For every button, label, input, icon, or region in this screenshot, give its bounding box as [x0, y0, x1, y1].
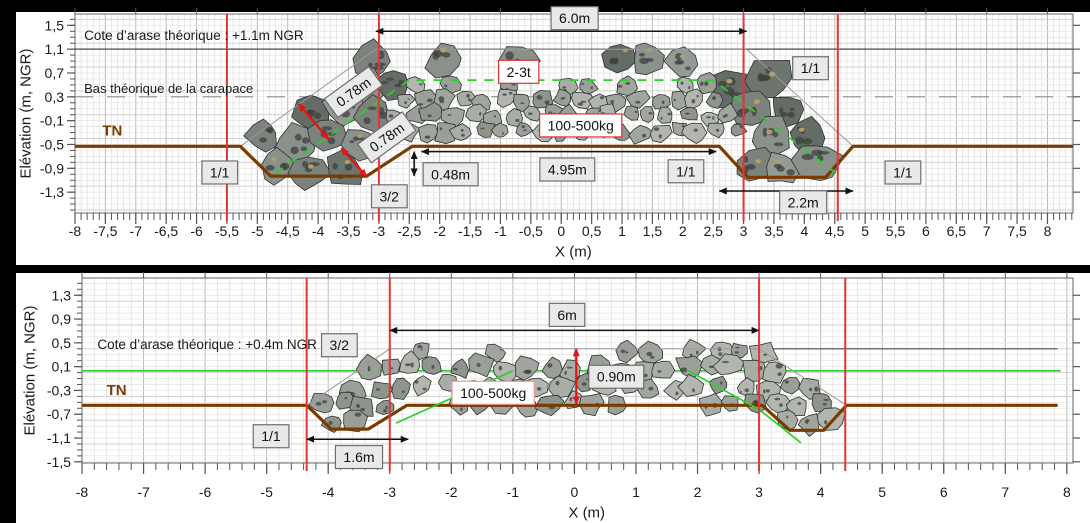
x-tick-label: 3 [755, 484, 763, 500]
rock-speckle [367, 107, 377, 110]
x-tick-label: 6,5 [947, 223, 967, 239]
rock-speckle [609, 58, 618, 65]
rock-speckle [763, 389, 765, 393]
rock-speckle [809, 388, 812, 392]
rock-speckle [635, 101, 640, 104]
rock-speckle [802, 138, 812, 144]
x-tick-label: 7,5 [1007, 223, 1027, 239]
rock-speckle [746, 164, 756, 170]
rock-speckle [776, 363, 783, 368]
rock-speckle [353, 137, 358, 141]
rock-speckle [525, 370, 532, 374]
rock-speckle [479, 112, 481, 116]
x-tick-label: -6 [190, 223, 203, 239]
rock-speckle [722, 361, 729, 363]
x-tick-label: -7 [130, 223, 143, 239]
rock-highlight [754, 99, 760, 104]
rock-speckle [360, 408, 365, 412]
rock-speckle [477, 363, 481, 367]
rock-speckle [432, 52, 439, 60]
rock-speckle [537, 95, 543, 100]
x-tick-label: -4 [322, 484, 335, 500]
x-tick-label: -8 [69, 223, 82, 239]
x-tick-label: 6 [922, 223, 930, 239]
rock-speckle [410, 362, 413, 367]
rock-highlight [647, 48, 652, 52]
y-axis-title: Elévation (m, NGR) [18, 48, 35, 178]
rock-speckle [774, 398, 780, 401]
rock-speckle [564, 371, 566, 375]
x-tick-label: 1,5 [643, 223, 663, 239]
y-tick-label: -0,7 [47, 406, 71, 422]
rock-speckle [704, 81, 708, 86]
rock-speckle [356, 404, 360, 408]
rock-speckle [265, 126, 273, 132]
y-tick-label: 0,5 [52, 335, 72, 351]
rock [652, 362, 675, 379]
rock-speckle [734, 351, 739, 353]
rock-speckle [667, 113, 671, 116]
x-tick-label: 0,5 [582, 223, 602, 239]
rock-speckle [418, 345, 422, 349]
x-tick-label: -3 [373, 223, 386, 239]
x-tick-label: 8 [1044, 223, 1052, 239]
rock-speckle [355, 413, 362, 417]
x-tick-label: -2 [433, 223, 446, 239]
rock-speckle [802, 154, 814, 160]
x-tick-label: 7 [983, 223, 991, 239]
rock-speckle [790, 108, 795, 111]
label-box: 1/1 [793, 57, 829, 80]
rock-speckle [785, 380, 789, 383]
rock-speckle [824, 420, 827, 424]
rock-speckle [662, 101, 665, 105]
label-box: 0.48m [423, 163, 478, 186]
rock-speckle [740, 391, 742, 393]
rock-highlight [272, 157, 277, 161]
rock-speckle [680, 367, 687, 372]
x-tick-label: 3,5 [764, 223, 784, 239]
rock-speckle [649, 112, 653, 115]
rock-speckle [805, 419, 808, 424]
label-box: 1/1 [253, 425, 289, 448]
rock-speckle [681, 82, 684, 85]
x-tick-label: -5,5 [215, 223, 239, 239]
rock-speckle [419, 83, 423, 85]
y-tick-label: -0,9 [40, 160, 64, 176]
x-tick-label: -2,5 [397, 223, 421, 239]
rock-speckle [625, 351, 628, 353]
rock-speckle [494, 115, 496, 117]
rock-speckle [302, 137, 310, 143]
rock-speckle [386, 78, 394, 81]
label-box: 100-500kg [540, 114, 622, 137]
rock-speckle [696, 351, 699, 355]
x-tick-label: 4,5 [825, 223, 845, 239]
label-box-text: 3/2 [330, 337, 350, 353]
rock-speckle [515, 119, 519, 122]
label-box: 1/1 [668, 160, 704, 183]
rock-speckle [499, 366, 503, 371]
rock-speckle [266, 165, 275, 171]
y-tick-label: -1,5 [47, 454, 71, 470]
x-tick-label: -0,5 [519, 223, 543, 239]
x-tick-label: -5 [260, 484, 273, 500]
x-tick-label: 4 [800, 223, 808, 239]
label-box-text: 2.2m [788, 194, 819, 210]
rock-speckle [621, 350, 626, 354]
rock-speckle [322, 400, 327, 403]
rock-speckle [505, 52, 513, 61]
label-box: 1.6m [335, 446, 382, 469]
x-tick-label: 7 [1001, 484, 1009, 500]
x-tick-label: -1,5 [458, 223, 482, 239]
rock-speckle [404, 101, 407, 104]
label-box-text: 1/1 [893, 164, 913, 180]
rock-speckle [423, 388, 427, 391]
rock-speckle [674, 99, 676, 101]
rock-speckle [537, 387, 542, 391]
rock-speckle [440, 127, 443, 130]
rock-speckle [600, 96, 604, 99]
label-box: 2.2m [780, 191, 827, 214]
x-tick-label: -2 [445, 484, 458, 500]
rock-speckle [447, 114, 451, 116]
rock-speckle [777, 166, 785, 172]
rock-speckle [376, 388, 380, 390]
rock-speckle [509, 92, 513, 95]
rock-speckle [427, 99, 433, 103]
rock-speckle [460, 407, 463, 411]
label-box: 2-3t [499, 60, 539, 83]
rock-highlight [775, 160, 780, 164]
label-box-text: 2-3t [507, 64, 531, 80]
rock-speckle [383, 409, 387, 412]
rock-highlight [727, 79, 733, 84]
rock-speckle [302, 161, 308, 168]
rock-speckle [617, 85, 622, 88]
rock-speckle [560, 98, 564, 100]
rock-speckle [723, 115, 726, 118]
rock-speckle [740, 126, 743, 129]
y-tick-label: -1,3 [40, 184, 64, 200]
rock-speckle [692, 388, 695, 392]
rock-speckle [700, 82, 704, 86]
annotation-text: Cote d’arase théorique : +0.4m NGR [97, 337, 317, 352]
y-tick-label: -1,1 [47, 430, 71, 446]
label-box: 100-500kg [452, 381, 534, 404]
rock-highlight [358, 134, 363, 138]
rock-speckle [648, 387, 653, 391]
rock-speckle [659, 134, 662, 138]
y-tick-label: 0,3 [45, 89, 65, 105]
label-box-text: 100-500kg [548, 117, 614, 133]
rock-highlight [680, 55, 684, 59]
y-tick-label: 1,3 [52, 287, 72, 303]
x-tick-label: -1 [507, 484, 520, 500]
rock-speckle [642, 134, 646, 138]
rock-speckle [823, 399, 829, 401]
rock-speckle [556, 381, 560, 386]
rock [640, 107, 654, 123]
rock-speckle [787, 112, 795, 118]
label-box-text: 0.90m [597, 369, 636, 385]
rock-speckle [442, 52, 451, 57]
x-axis-title: X (m) [555, 244, 592, 261]
y-tick-label: 0,7 [45, 65, 65, 81]
rock-speckle [570, 397, 574, 399]
label-box-text: 1.6m [343, 449, 374, 465]
x-tick-label: 5,5 [886, 223, 906, 239]
rock-speckle [405, 363, 411, 366]
rock-speckle [677, 60, 685, 65]
label-box-text: 0.48m [431, 166, 470, 182]
rock-speckle [718, 352, 722, 356]
rock-speckle [685, 67, 691, 71]
rock-speckle [779, 403, 783, 407]
label-box-text: 1/1 [801, 60, 821, 76]
x-tick-label: 6 [940, 484, 948, 500]
label-box: 0.90m [589, 365, 644, 388]
rock-speckle [774, 143, 784, 147]
annotation-text: TN [107, 382, 127, 399]
rock-speckle [745, 388, 750, 392]
x-axis-title: X (m) [568, 505, 605, 522]
rock-speckle [528, 113, 533, 115]
rock-speckle [581, 101, 586, 103]
rock-speckle [259, 137, 267, 142]
x-tick-label: 0 [571, 484, 579, 500]
breakwater-cross-sections-figure: -8-7,5-7-6,5-6-5,5-5-4,5-4-3,5-3-2,5-2-1… [0, 0, 1090, 523]
rock-speckle [688, 86, 690, 89]
x-tick-label: 5 [861, 223, 869, 239]
label-box-text: 4.95m [548, 162, 587, 178]
rock-speckle [562, 86, 566, 89]
rock-speckle [502, 93, 507, 96]
rock-speckle [591, 86, 593, 89]
x-tick-label: 2 [679, 223, 687, 239]
rock-speckle [368, 366, 371, 372]
rock-speckle [712, 98, 716, 100]
rock-highlight [345, 160, 350, 164]
rock-highlight [755, 159, 760, 163]
y-axis-title: Elévation (m, NGR) [22, 305, 39, 435]
rock-speckle [349, 140, 354, 143]
rock-speckle [547, 363, 552, 367]
rock-speckle [650, 356, 654, 359]
label-box: 3/2 [322, 334, 358, 357]
annotation-text: TN [102, 122, 122, 139]
rock-speckle [817, 151, 829, 155]
x-tick-label: -4,5 [276, 223, 300, 239]
rock-speckle [777, 372, 782, 376]
rock-speckle [364, 117, 371, 124]
black-bar [0, 265, 1090, 273]
rock-speckle [823, 403, 827, 405]
rock-speckle [654, 127, 659, 131]
label-box-text: 3/2 [379, 188, 399, 204]
y-tick-label: 0,1 [52, 359, 72, 375]
x-tick-label: 2 [694, 484, 702, 500]
label-box-text: 1/1 [261, 428, 281, 444]
rock-speckle [786, 416, 788, 419]
x-tick-label: 1 [632, 484, 640, 500]
rock-speckle [523, 129, 527, 131]
black-bar [0, 0, 16, 523]
rock-speckle [787, 169, 795, 175]
rock-speckle [385, 406, 387, 410]
annotation-text: Bas théorique de la carapace [84, 81, 253, 96]
rock-speckle [773, 132, 779, 137]
x-tick-label: 8 [1063, 484, 1071, 500]
rock-speckle [414, 380, 419, 384]
label-box-text: 6m [557, 307, 576, 323]
x-tick-label: 1 [618, 223, 626, 239]
rock-speckle [402, 390, 405, 393]
x-tick-label: -6 [199, 484, 212, 500]
annotation-text: Cote d’arase théorique : +1.1m NGR [84, 28, 304, 43]
rock-speckle [582, 382, 587, 386]
x-tick-label: 2,5 [703, 223, 723, 239]
rock-speckle [706, 116, 711, 118]
breakwater-sections-svg: -8-7,5-7-6,5-6-5,5-5-4,5-4-3,5-3-2,5-2-1… [0, 0, 1090, 523]
y-tick-label: 0,9 [52, 311, 72, 327]
x-tick-label: -3,5 [336, 223, 360, 239]
x-tick-label: 5 [878, 484, 886, 500]
rock-speckle [696, 95, 698, 98]
rock-highlight [799, 128, 804, 132]
rock-speckle [344, 397, 347, 399]
x-tick-label: -1 [494, 223, 507, 239]
y-tick-label: 1,1 [45, 41, 65, 57]
rock-speckle [332, 163, 337, 170]
rock-speckle [444, 85, 447, 88]
rock-speckle [468, 98, 471, 101]
label-box-text: 100-500kg [460, 385, 526, 401]
rock-speckle [389, 114, 394, 117]
y-tick-label: 1,5 [45, 17, 65, 33]
black-bar [0, 0, 1090, 12]
rock-speckle [639, 53, 645, 57]
label-box-text: 1/1 [210, 164, 230, 180]
rock-speckle [625, 82, 630, 85]
rock-speckle [797, 402, 801, 405]
rock-speckle [545, 100, 550, 104]
rock-speckle [428, 114, 432, 117]
rock-speckle [716, 129, 719, 132]
rock-speckle [692, 99, 696, 103]
rock-speckle [381, 81, 388, 84]
rock-speckle [646, 352, 652, 356]
rock-speckle [432, 365, 435, 369]
rock-speckle [290, 147, 298, 155]
label-box: 6m [549, 303, 584, 326]
rock [382, 359, 400, 375]
x-tick-label: 0 [557, 223, 565, 239]
rock-speckle [316, 402, 322, 406]
rock-speckle [635, 111, 638, 113]
rock-speckle [345, 163, 352, 171]
x-tick-label: -4 [312, 223, 325, 239]
rock-speckle [480, 128, 484, 130]
rock-speckle [374, 62, 386, 66]
x-tick-label: -3 [384, 484, 397, 500]
rock-speckle [675, 392, 678, 396]
rock-speckle [295, 134, 302, 141]
rock-speckle [639, 58, 649, 64]
x-tick-label: -8 [76, 484, 89, 500]
x-tick-label: -5 [251, 223, 264, 239]
rock-speckle [453, 368, 458, 371]
label-box: 6.0m [551, 7, 598, 30]
label-box: 3/2 [371, 185, 407, 208]
rock-speckle [461, 129, 464, 132]
rock-speckle [329, 421, 333, 425]
rock-speckle [521, 125, 525, 128]
x-tick-label: -7 [137, 484, 150, 500]
rock-speckle [461, 134, 465, 137]
y-tick-label: -0,1 [40, 113, 64, 129]
x-tick-label: 4 [817, 484, 825, 500]
rock-speckle [520, 102, 524, 104]
rock-speckle [712, 116, 714, 120]
y-tick-label: -0,5 [40, 136, 64, 152]
label-box: 1/1 [202, 161, 238, 184]
label-box-text: 6.0m [559, 10, 590, 26]
rock-speckle [426, 136, 430, 139]
rock-speckle [660, 117, 662, 120]
label-box-text: 1/1 [676, 163, 696, 179]
rock-highlight [440, 48, 446, 52]
rock-speckle [408, 98, 410, 100]
rock-speckle [578, 102, 583, 105]
rock-speckle [466, 94, 470, 98]
rock-speckle [301, 146, 307, 151]
rock-speckle [737, 109, 746, 117]
label-box: 1/1 [885, 161, 921, 184]
x-tick-label: -6,5 [154, 223, 178, 239]
rock-speckle [658, 370, 662, 372]
rock-speckle [502, 132, 504, 135]
figure-background [0, 0, 1090, 523]
rock-speckle [581, 83, 584, 85]
rock-speckle [686, 113, 690, 115]
y-tick-label: -0,3 [47, 382, 71, 398]
rock-highlight [766, 130, 772, 135]
rock-speckle [759, 75, 769, 82]
rock-speckle [440, 100, 445, 103]
label-box: 4.95m [540, 158, 595, 181]
rock-speckle [720, 381, 722, 384]
rock-highlight [308, 164, 314, 168]
rock-speckle [567, 367, 573, 369]
rock-speckle [694, 129, 698, 132]
x-tick-label: 3 [740, 223, 748, 239]
x-tick-label: -7,5 [93, 223, 117, 239]
rock-speckle [766, 389, 770, 392]
rock-speckle [322, 126, 332, 130]
